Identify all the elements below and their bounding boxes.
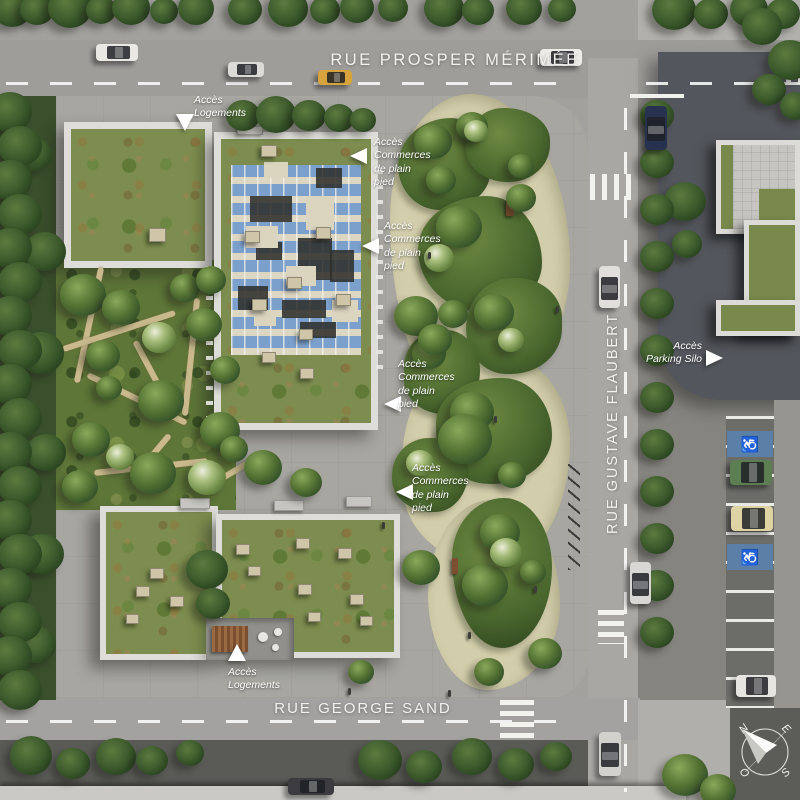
accessible-parking-bay: ♿	[727, 544, 773, 570]
street-label-george-sand: RUE GEORGE SAND	[263, 700, 463, 717]
roof-walkway-patch	[254, 310, 276, 326]
rooftop-unit	[350, 594, 364, 605]
pedestrian	[382, 522, 385, 529]
east-walk-strip	[774, 400, 800, 708]
tree	[640, 147, 674, 178]
tree	[228, 0, 262, 25]
annotation-line: pied	[412, 502, 469, 515]
tree	[196, 588, 230, 619]
tree	[506, 0, 542, 25]
pedestrian	[348, 688, 351, 695]
tree	[292, 100, 326, 131]
tree	[60, 274, 106, 316]
annotation-commerces-4: Accès Commerces de plain pied	[412, 462, 469, 516]
accessible-parking-bay: ♿	[727, 431, 773, 457]
tree	[102, 290, 140, 325]
rooftop-unit	[308, 612, 321, 622]
annotation-line: Commerces	[374, 149, 431, 162]
tree	[528, 638, 562, 669]
tree	[474, 294, 514, 331]
south-building-edge	[0, 786, 686, 800]
tree	[506, 184, 536, 212]
tree	[138, 380, 184, 422]
annotation-line: de plain	[412, 489, 469, 502]
car	[288, 778, 334, 795]
annotation-line: Commerces	[412, 475, 469, 488]
annotation-commerces-1: Accès Commerces de plain pied	[374, 136, 431, 190]
rooftop-unit	[126, 614, 139, 624]
annotation-commerces-3: Accès Commerces de plain pied	[398, 358, 455, 412]
building-b-roof-green-left	[221, 165, 231, 355]
annotation-line: Accès	[374, 136, 431, 149]
street-label-prosper-merimee: RUE PROSPER MÉRIMÉE	[330, 51, 580, 70]
tree	[186, 550, 228, 589]
tree	[520, 560, 546, 584]
annotation-line: Accès	[412, 462, 469, 475]
tree	[490, 538, 522, 567]
car	[630, 562, 651, 604]
tree	[96, 738, 136, 775]
terrace-table	[272, 644, 279, 651]
roof-walkway-patch	[264, 162, 288, 178]
roof-dark-patch	[330, 250, 354, 282]
tree	[56, 748, 90, 779]
tree	[340, 0, 374, 23]
building-a-green-roof	[64, 122, 212, 268]
building-c-terrace	[206, 618, 294, 660]
roof-walkway-patch	[306, 196, 334, 230]
tree	[196, 266, 226, 294]
tree	[498, 462, 526, 488]
rooftop-unit	[336, 294, 351, 306]
tree	[640, 476, 674, 507]
tree	[464, 120, 488, 142]
rooftop-unit	[252, 299, 267, 311]
site-plan: ♿ ♿	[0, 0, 800, 800]
tree	[10, 736, 52, 775]
annotation-line: Accès	[640, 340, 702, 353]
rooftop-unit	[300, 368, 314, 379]
pedestrian	[468, 632, 471, 639]
rooftop-unit	[136, 586, 150, 597]
tree	[350, 108, 376, 132]
wheelchair-icon: ♿	[743, 548, 758, 567]
rooftop-unit	[338, 548, 352, 559]
arrow-down-icon	[176, 114, 194, 131]
rooftop-unit	[296, 538, 310, 549]
tree	[348, 660, 374, 684]
center-line	[6, 82, 562, 85]
tree	[176, 740, 204, 766]
entrance-canopy	[180, 498, 210, 509]
car	[228, 62, 264, 77]
building-b-roof-green-bottom	[221, 355, 371, 423]
arrow-left-icon	[396, 484, 413, 500]
annotation-line: de plain	[374, 163, 431, 176]
annotation-line: Logements	[194, 107, 246, 120]
tree	[112, 0, 150, 25]
tree	[150, 0, 178, 24]
tree	[244, 450, 282, 485]
wheelchair-icon: ♿	[743, 435, 758, 454]
tree	[672, 230, 702, 258]
terrace-table	[274, 628, 282, 636]
tree	[210, 356, 240, 384]
roof-dark-patch	[316, 168, 342, 188]
tree	[96, 376, 122, 400]
tree	[640, 288, 674, 319]
crosswalk	[500, 700, 534, 738]
street-label-gustave-flaubert: RUE GUSTAVE FLAUBERT	[605, 334, 621, 534]
tree	[402, 550, 440, 585]
annotation-line: Accès	[398, 358, 455, 371]
tree	[548, 0, 576, 22]
rooftop-unit	[149, 228, 166, 242]
tree	[136, 746, 168, 775]
car	[599, 266, 620, 308]
arrow-left-icon	[350, 148, 367, 164]
tree	[424, 0, 464, 27]
rooftop-unit	[170, 596, 184, 607]
tree	[498, 328, 524, 352]
tree	[26, 434, 66, 471]
tree	[310, 0, 340, 24]
tree	[640, 241, 674, 272]
tree	[178, 0, 214, 25]
rooftop-unit	[236, 544, 250, 555]
pedestrian	[494, 416, 497, 423]
rooftop-unit	[287, 277, 302, 289]
rooftop-unit	[262, 352, 276, 363]
car	[731, 506, 773, 531]
tree	[462, 564, 508, 606]
tree	[406, 750, 442, 783]
tree	[438, 414, 492, 464]
building-b-roof-green-right	[361, 165, 371, 355]
arrow-left-icon	[362, 238, 379, 254]
stop-line	[630, 94, 684, 98]
entrance-canopy	[346, 496, 372, 507]
car	[736, 675, 776, 697]
car	[599, 732, 621, 776]
tree	[220, 436, 248, 462]
neighbour-roof-tiles	[733, 145, 795, 189]
tree	[540, 742, 572, 771]
rooftop-unit	[316, 227, 331, 239]
annotation-line: pied	[374, 176, 431, 189]
tree	[142, 322, 176, 353]
pedestrian	[556, 306, 559, 313]
tree	[742, 8, 782, 45]
center-line	[6, 720, 572, 723]
pedestrian	[534, 586, 537, 593]
rooftop-unit	[299, 329, 313, 340]
annotation-line: Parking Silo	[640, 353, 702, 366]
roof-dark-patch	[282, 300, 326, 318]
tree	[0, 670, 42, 710]
tree	[290, 468, 322, 497]
tree	[186, 308, 222, 341]
car	[318, 70, 352, 85]
car	[645, 106, 667, 150]
tree	[62, 470, 98, 503]
annotation-line: de plain	[384, 247, 441, 260]
bike-racks	[568, 464, 580, 570]
entrance-canopy	[274, 500, 304, 511]
annotation-line: Commerces	[384, 233, 441, 246]
annotation-line: de plain	[398, 385, 455, 398]
rooftop-unit	[245, 231, 260, 243]
rooftop-unit	[360, 616, 373, 626]
building-b-balconies-east	[376, 170, 383, 380]
tree	[640, 429, 674, 460]
rooftop-unit	[261, 145, 277, 157]
annotation-line: pied	[384, 260, 441, 273]
annotation-line: Commerces	[398, 371, 455, 384]
tree	[452, 738, 492, 775]
annotation-line: Accès	[384, 220, 441, 233]
rooftop-unit	[298, 584, 312, 595]
tree	[106, 444, 134, 470]
tree	[418, 324, 452, 355]
tree	[438, 300, 468, 328]
tree	[358, 740, 402, 780]
tree	[462, 0, 494, 25]
tree	[700, 774, 736, 800]
pedestrian	[448, 690, 451, 697]
tree	[436, 206, 482, 248]
center-line	[624, 700, 627, 792]
crosswalk	[598, 610, 624, 644]
terrace-table	[258, 632, 268, 642]
bench	[452, 558, 458, 574]
tree	[72, 422, 110, 457]
annotation-commerces-2: Accès Commerces de plain pied	[384, 220, 441, 274]
building-b-roof-green-top	[221, 139, 371, 165]
rooftop-unit	[248, 566, 261, 576]
tree	[640, 523, 674, 554]
tree	[268, 0, 308, 27]
tree	[188, 460, 226, 495]
annotation-line: pied	[398, 398, 455, 411]
tree	[508, 154, 534, 178]
tree	[640, 382, 674, 413]
car	[96, 44, 138, 61]
annotation-line: Logements	[228, 679, 280, 692]
tree	[86, 340, 120, 371]
tree	[130, 452, 176, 494]
roof-dark-patch	[250, 196, 292, 222]
arrow-up-icon	[228, 644, 246, 661]
tree	[256, 96, 296, 133]
compass-rose: N E S O	[733, 720, 797, 784]
annotation-logements-top: Accès Logements	[194, 94, 246, 121]
car	[730, 460, 772, 485]
annotation-line: Accès	[228, 666, 280, 679]
tree	[640, 194, 674, 225]
neighbour-building	[716, 300, 800, 336]
rooftop-unit	[150, 568, 164, 579]
annotation-logements-bottom: Accès Logements	[228, 666, 280, 693]
arrow-right-icon	[706, 350, 723, 366]
tree	[378, 0, 408, 22]
annotation-parking-silo: Accès Parking Silo	[640, 340, 702, 367]
tree	[474, 658, 504, 686]
tree	[498, 748, 534, 781]
tree	[640, 617, 674, 648]
annotation-line: Accès	[194, 94, 246, 107]
tree	[48, 0, 92, 28]
crosswalk	[590, 174, 636, 200]
